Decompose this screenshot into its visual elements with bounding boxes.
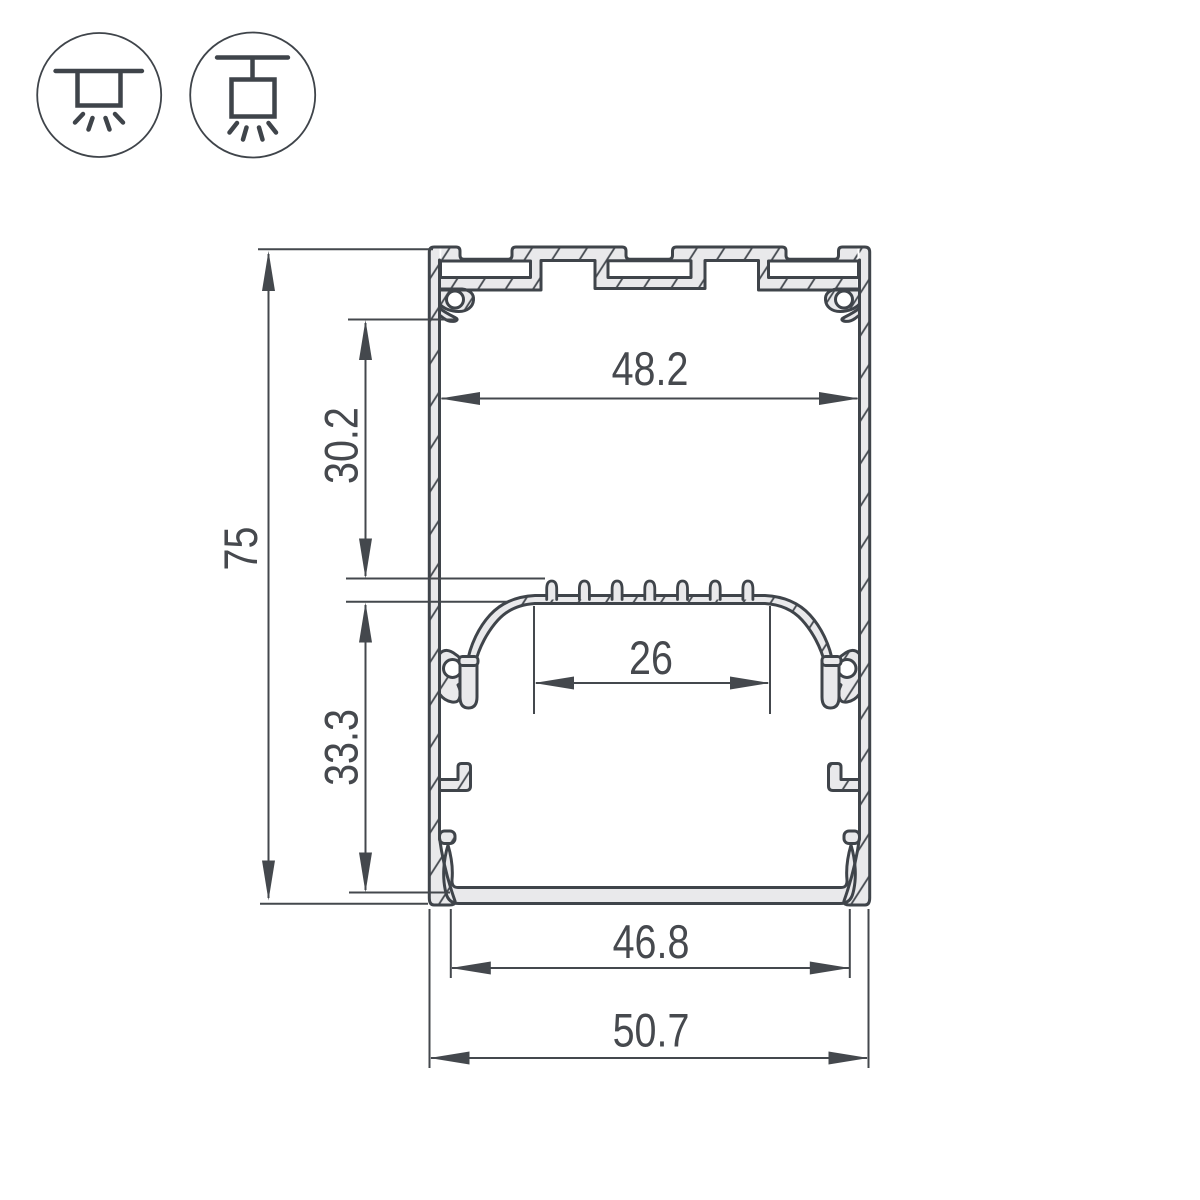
svg-text:26: 26	[629, 633, 673, 685]
svg-text:46.8: 46.8	[613, 917, 690, 969]
svg-text:75: 75	[216, 527, 268, 571]
svg-text:30.2: 30.2	[316, 407, 368, 484]
svg-text:50.7: 50.7	[613, 1005, 690, 1057]
svg-text:48.2: 48.2	[612, 344, 689, 396]
svg-text:33.3: 33.3	[316, 709, 368, 786]
